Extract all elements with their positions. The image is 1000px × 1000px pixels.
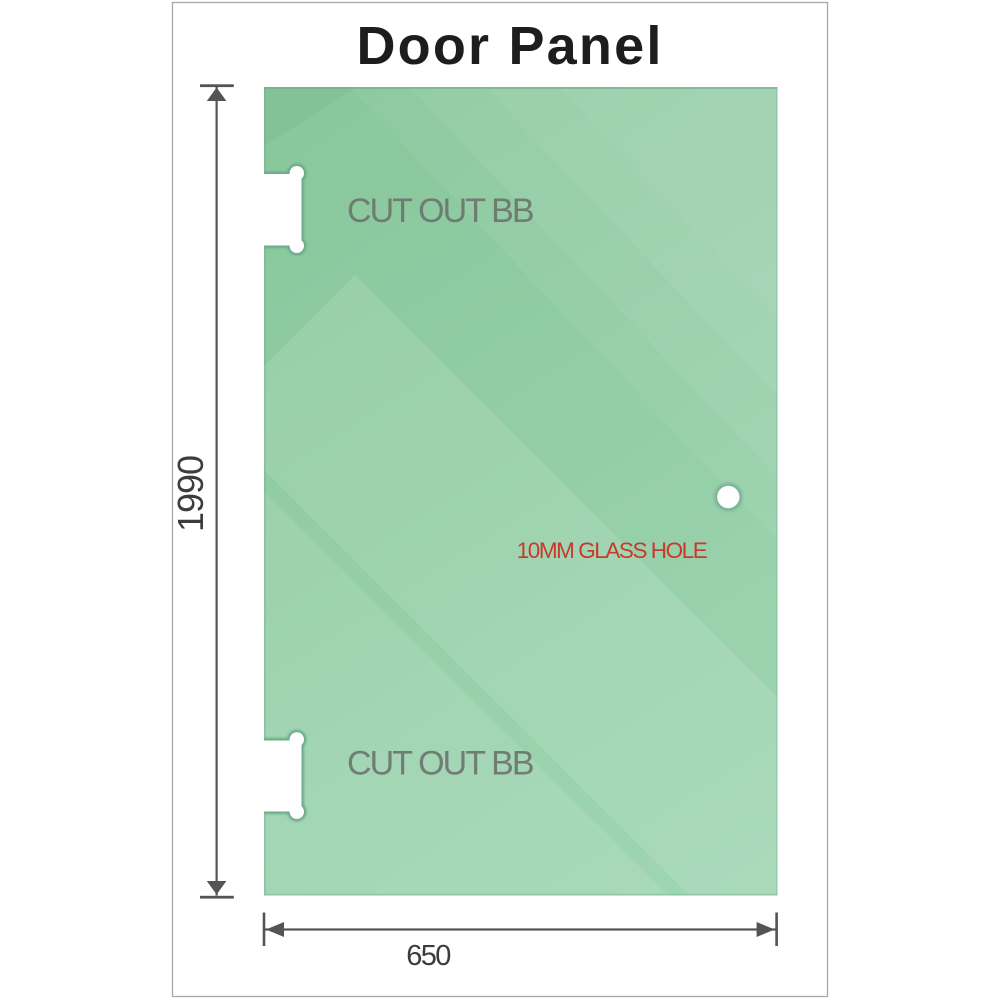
svg-text:650: 650	[406, 940, 450, 972]
svg-text:10MM GLASS HOLE: 10MM GLASS HOLE	[517, 538, 708, 563]
svg-text:1990: 1990	[170, 456, 211, 532]
svg-text:CUT OUT BB: CUT OUT BB	[347, 192, 533, 230]
svg-text:Door Panel: Door Panel	[356, 16, 663, 76]
svg-text:CUT OUT BB: CUT OUT BB	[347, 745, 533, 783]
